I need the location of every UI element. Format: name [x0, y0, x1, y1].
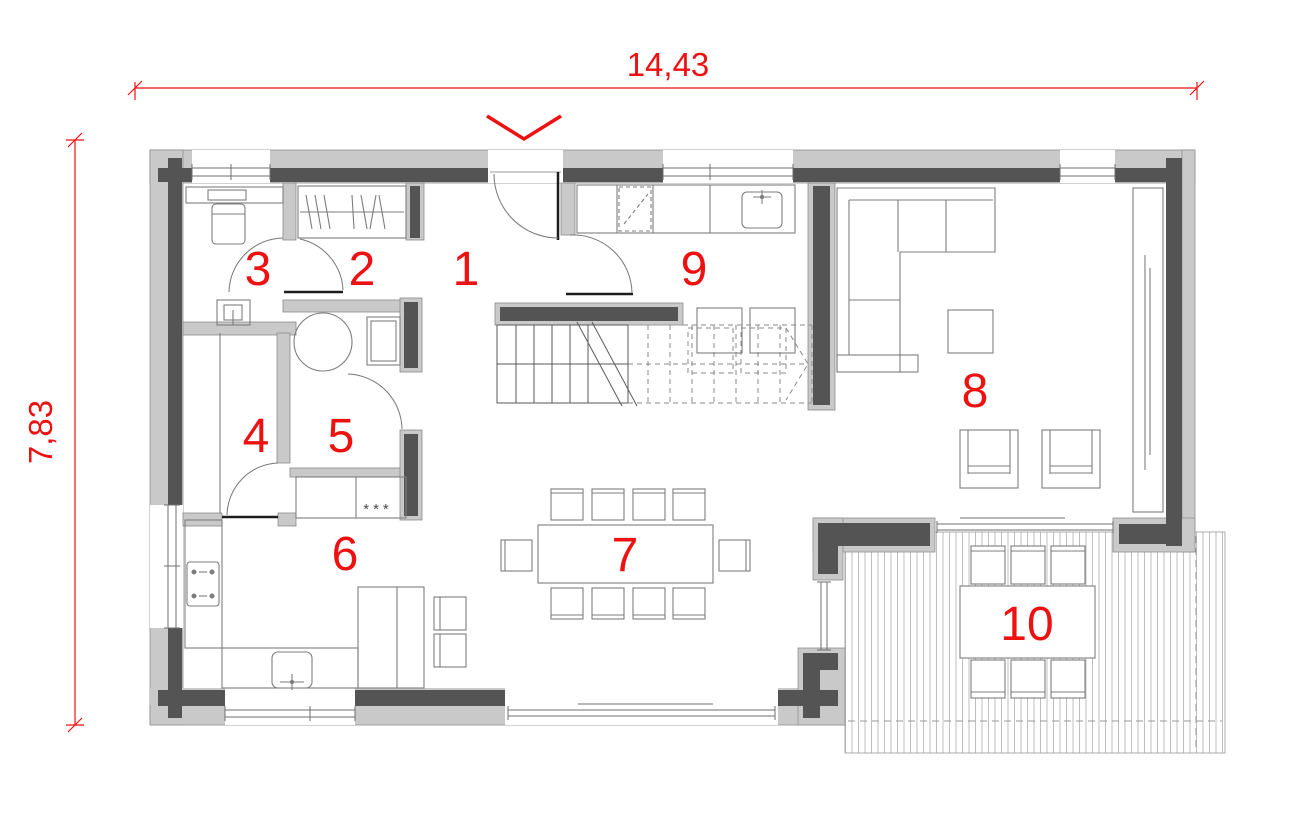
wardrobe-door-swing: [300, 239, 343, 290]
stair-upper-flight-dashed: [628, 325, 812, 403]
armchair: [1042, 430, 1100, 488]
living-furniture: [837, 188, 1163, 512]
room-label-dining: 7: [612, 529, 639, 582]
dining-chair: [673, 588, 705, 619]
kitchen-furniture: [185, 520, 466, 690]
dining-chair: [551, 489, 583, 520]
dimension-label-height: 7,83: [22, 400, 59, 464]
wall-hall-kitchen9: [561, 183, 575, 235]
wall-wardrobe-bath: [283, 300, 406, 312]
closet-door-swing: [227, 463, 278, 515]
dashed-stool-shadow: [688, 328, 733, 373]
core-terrace-corner-h: [803, 653, 838, 670]
core-stair-top: [500, 307, 678, 321]
entrance-door-swing: [494, 174, 558, 238]
wall-closet-bath: [277, 333, 290, 463]
armchair: [960, 430, 1018, 488]
room-label-hallway: 1: [453, 243, 480, 296]
core-left: [168, 158, 182, 718]
sofa-foot: [837, 355, 918, 372]
dining-chair: [633, 588, 665, 619]
washing-machine-inner: [371, 321, 396, 361]
room-label-living: 8: [962, 365, 989, 418]
room-label-terrace: 10: [1000, 598, 1053, 651]
media-wall-unit: [1133, 188, 1163, 512]
faucet: [290, 680, 293, 683]
opening-entrance: [488, 150, 563, 183]
freezer-symbol: ***: [363, 501, 393, 518]
core-wardrobe-hall: [410, 186, 420, 238]
dining-chair: [501, 540, 532, 571]
bathroom-door-swing: [348, 374, 402, 429]
core-right: [1166, 158, 1182, 546]
dining-chair: [633, 489, 665, 520]
dining-chair: [719, 540, 750, 571]
wall-study-wardrobe: [283, 183, 296, 240]
stove: [187, 562, 219, 606]
stair-direction-arrow: [786, 328, 808, 400]
kitchen-counter-left: [185, 520, 222, 648]
interior-partitions: [183, 183, 835, 526]
room-label-study: 3: [245, 243, 272, 296]
terrace-chair: [971, 546, 1005, 584]
fridge-dashed: [619, 187, 651, 231]
room-label-bathroom: 5: [328, 410, 355, 463]
terrace-side-door: [817, 582, 831, 650]
faucet: [760, 195, 763, 198]
dashed-stool-shadow: [741, 328, 786, 373]
bar-stool-square: [750, 308, 795, 353]
terrace-chair: [1051, 546, 1085, 584]
staircase: [497, 322, 812, 406]
wall-closet-bottom-right: [278, 513, 296, 526]
interior-partition-cores: [404, 186, 830, 516]
coffee-table: [948, 310, 993, 353]
floor-plan-page: 14,43 7,83: [0, 0, 1300, 838]
room-label-kitchen9: 9: [681, 243, 708, 296]
opening-window-living: [1060, 150, 1115, 183]
bar-stool: [434, 634, 466, 667]
bar-stool: [434, 597, 466, 630]
round-fixture: [294, 313, 352, 371]
core-living-bottom: [1119, 524, 1182, 544]
wardrobe-unit: [298, 186, 406, 238]
kitchen9-door-swing: [570, 235, 632, 293]
opening-sliding-door-bottom: [505, 688, 778, 725]
desk: [186, 187, 283, 203]
washing-machine: [367, 317, 400, 365]
room-label-wardrobe: 2: [349, 243, 376, 296]
sliding-door-terrace: [937, 518, 1113, 533]
bar-stool-square: [697, 308, 742, 353]
corner-sofa: [837, 188, 995, 372]
core-corner-v: [818, 523, 838, 574]
dining-chair: [592, 588, 624, 619]
wall-bath-bottom: [290, 468, 406, 477]
wall-right: [1182, 150, 1195, 552]
room-label-closet: 4: [243, 410, 270, 463]
opening-window-kitchen9: [663, 150, 793, 183]
dining-chair: [673, 489, 705, 520]
kitchen-island: [358, 587, 424, 688]
dining-chair: [592, 489, 624, 520]
desk-chair: [212, 204, 245, 244]
dining-chair: [551, 588, 583, 619]
dimension-label-width: 14,43: [627, 46, 710, 83]
floor-plan-drawing: 14,43 7,83: [0, 0, 1300, 838]
terrace-chair: [1011, 546, 1045, 584]
desk-item: [208, 190, 246, 200]
entrance-marker-chevron: [487, 116, 561, 139]
core-kitchen9-living: [813, 186, 830, 405]
opening-window-bottom: [225, 688, 355, 725]
room-label-kitchen: 6: [332, 528, 359, 581]
core-bath-right-upper: [404, 302, 418, 368]
